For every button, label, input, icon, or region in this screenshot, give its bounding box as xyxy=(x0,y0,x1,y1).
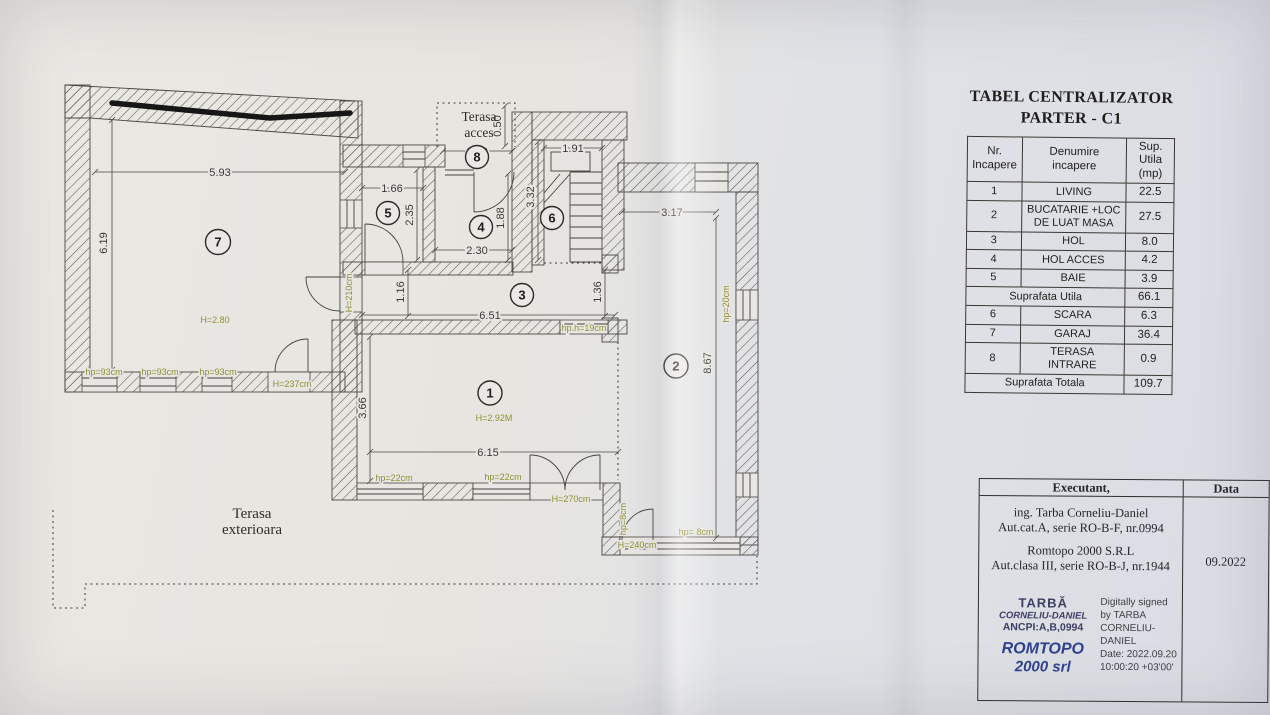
cell-nr: 6 xyxy=(966,305,1021,324)
height-label: hp=22cm xyxy=(375,473,412,483)
height-label: hp=20cm xyxy=(721,285,731,322)
signature-block: Executant, ing. Tarba Corneliu-Daniel Au… xyxy=(977,478,1270,703)
cell-nr: 8 xyxy=(965,343,1020,375)
table-row: 1 LIVING 22.5 xyxy=(967,182,1174,203)
cell-den: GARAJ xyxy=(1020,325,1125,345)
room-number: 7 xyxy=(214,235,221,250)
stamp-name: TARBĂ xyxy=(991,595,1096,611)
dim-label: 1.36 xyxy=(592,281,604,302)
dim-label: 3.17 xyxy=(661,207,682,219)
height-label: hp=93cm xyxy=(199,367,236,377)
room-number: 4 xyxy=(477,220,485,235)
height-label: H=240cm xyxy=(618,540,657,550)
digital-line: CORNELIU- xyxy=(1100,622,1182,636)
subtotal-row: Suprafata Utila 66.1 xyxy=(966,287,1173,308)
terasa-exterioara-label: exterioara xyxy=(222,522,282,538)
cell-sup: 3.9 xyxy=(1125,270,1173,289)
room-number: 3 xyxy=(518,288,525,303)
room-number: 1 xyxy=(486,386,493,401)
cell-nr: 5 xyxy=(966,268,1021,287)
cell-den: LIVING xyxy=(1021,182,1126,202)
height-label: H=210cm xyxy=(344,274,354,313)
stamp-name2: CORNELIU-DANIEL xyxy=(991,610,1096,622)
height-label: H=237cm xyxy=(273,379,312,389)
height-label: H=2.92M xyxy=(476,413,513,423)
digital-line: DANIEL xyxy=(1100,635,1182,649)
windows-and-openings xyxy=(82,145,758,555)
table-row: 4 HOL ACCES 4.2 xyxy=(966,250,1173,271)
executant-line: Romtopo 2000 S.R.L xyxy=(979,542,1182,559)
room-number: 8 xyxy=(473,150,480,165)
dim-label: 6.51 xyxy=(479,310,500,322)
dim-label: 3.66 xyxy=(357,397,369,418)
terasa-acces-label: Terasa xyxy=(461,109,496,124)
dim-label: 2.30 xyxy=(466,245,487,257)
col-header-denumire: Denumire incapere xyxy=(1022,137,1127,184)
height-label: hp=93cm xyxy=(141,367,178,377)
table-row: 3 HOL 8.0 xyxy=(966,231,1173,252)
cell-sup: 6.3 xyxy=(1125,307,1173,326)
height-label: H=270cm xyxy=(552,494,591,504)
dim-label: 3.32 xyxy=(525,186,537,207)
photo-of-floor-plan-document: { "colors":{"paper":"#e8e6e2","line":"#3… xyxy=(0,0,1270,715)
table-row: 7 GARAJ 36.4 xyxy=(965,324,1172,345)
table-row: 8 TERASA INTRARE 0.9 xyxy=(965,343,1172,376)
room-number: 6 xyxy=(548,211,555,226)
cell-nr: 2 xyxy=(967,200,1022,232)
cell-den: HOL xyxy=(1021,232,1126,252)
total-value: 109.7 xyxy=(1124,375,1172,394)
summary-table: TABEL CENTRALIZATOR PARTER - C1 Nr. Inca… xyxy=(964,87,1175,395)
subtotal-label: Suprafata Utila xyxy=(966,287,1126,307)
executant-header: Executant, xyxy=(980,479,1183,497)
cell-sup: 36.4 xyxy=(1125,326,1173,345)
room-number: 5 xyxy=(384,206,391,221)
digital-line: Digitally signed xyxy=(1100,596,1182,610)
stamp: TARBĂ CORNELIU-DANIEL ANCPI:A,B,0994 ROM… xyxy=(990,595,1095,676)
dim-label: 8.67 xyxy=(702,352,714,373)
table-title: TABEL CENTRALIZATOR PARTER - C1 xyxy=(967,87,1175,131)
digital-line: Date: 2022.09.20 xyxy=(1100,648,1182,662)
terasa-acces-label: acces xyxy=(464,125,493,140)
dim-label: 5.93 xyxy=(209,167,230,179)
table-header-row: Nr. Incapere Denumire incapere Sup. Util… xyxy=(967,136,1174,184)
total-row: Suprafata Totala 109.7 xyxy=(965,374,1172,395)
cell-nr: 7 xyxy=(965,324,1020,343)
executant-line: ing. Tarba Corneliu-Daniel xyxy=(979,505,1182,522)
dim-label: 1.91 xyxy=(562,143,583,155)
height-label: H=2.80 xyxy=(200,315,229,325)
col-header-suprafata: Sup. Utila (mp) xyxy=(1127,138,1175,184)
digital-line: by TARBA xyxy=(1100,609,1182,623)
cell-nr: 3 xyxy=(966,231,1021,250)
cell-den: BAIE xyxy=(1021,269,1126,289)
height-label: hp=22cm xyxy=(484,472,521,482)
dim-label: 6.15 xyxy=(477,447,498,459)
date-header: Data xyxy=(1184,480,1269,498)
dim-label: 1.88 xyxy=(495,207,507,228)
subtotal-value: 66.1 xyxy=(1125,289,1173,308)
dim-label: 2.35 xyxy=(404,204,416,225)
executant-line: Aut.cat.A, serie RO-B-F, nr.0994 xyxy=(979,520,1182,537)
cell-den: BUCATARIE +LOC DE LUAT MASA xyxy=(1021,201,1126,233)
height-label: hp h=19cm xyxy=(562,323,607,333)
terasa-exterioara-label: Terasa xyxy=(233,506,272,522)
cell-den: HOL ACCES xyxy=(1021,250,1126,270)
cell-sup: 8.0 xyxy=(1126,233,1174,252)
total-label: Suprafata Totala xyxy=(965,374,1125,394)
cell-sup: 27.5 xyxy=(1126,202,1174,233)
dim-label: 1.16 xyxy=(395,281,407,302)
height-label: hp=8cm xyxy=(618,503,628,535)
dim-label: 6.19 xyxy=(98,232,110,253)
executant-column: Executant, ing. Tarba Corneliu-Daniel Au… xyxy=(978,479,1184,701)
dim-label: 1.66 xyxy=(381,183,402,195)
date-column: Data 09.2022 xyxy=(1182,480,1269,702)
room-areas-table: Nr. Incapere Denumire incapere Sup. Util… xyxy=(964,136,1175,395)
cell-sup: 0.9 xyxy=(1125,344,1173,375)
room-number: 2 xyxy=(672,359,679,374)
stamp-ancpi: ANCPI:A,B,0994 xyxy=(991,621,1096,634)
height-label: hp=93cm xyxy=(85,367,122,377)
executant-details: ing. Tarba Corneliu-Daniel Aut.cat.A, se… xyxy=(979,496,1183,574)
floor-plan: 5.93 6.19 1.66 2.35 1.70 0.50 1.91 3.32 … xyxy=(0,0,960,715)
cell-den: SCARA xyxy=(1020,306,1125,326)
height-label: hp= 8cm xyxy=(679,527,714,537)
table-row: 5 BAIE 3.9 xyxy=(966,268,1173,289)
cell-den: TERASA INTRARE xyxy=(1020,343,1125,375)
date-value: 09.2022 xyxy=(1183,554,1268,570)
table-title-line2: PARTER - C1 xyxy=(967,108,1175,131)
stamp-company2: 2000 srl xyxy=(990,658,1095,676)
table-title-line1: TABEL CENTRALIZATOR xyxy=(967,87,1175,110)
cell-sup: 22.5 xyxy=(1126,183,1174,202)
executant-line: Aut.clasa III, serie RO-B-J, nr.1944 xyxy=(979,558,1182,575)
digital-signature-text: Digitally signed by TARBA CORNELIU- DANI… xyxy=(1100,596,1182,677)
stamp-and-digital-signature: TARBĂ CORNELIU-DANIEL ANCPI:A,B,0994 ROM… xyxy=(978,595,1182,676)
table-row: 2 BUCATARIE +LOC DE LUAT MASA 27.5 xyxy=(967,200,1174,233)
cell-sup: 4.2 xyxy=(1126,251,1174,270)
cell-nr: 4 xyxy=(966,250,1021,269)
cell-nr: 1 xyxy=(967,182,1022,201)
col-header-nr: Nr. Incapere xyxy=(967,136,1022,182)
digital-line: 10:00:20 +03'00' xyxy=(1100,661,1182,675)
table-row: 6 SCARA 6.3 xyxy=(966,305,1173,326)
stamp-company: ROMTOPO xyxy=(991,640,1096,659)
